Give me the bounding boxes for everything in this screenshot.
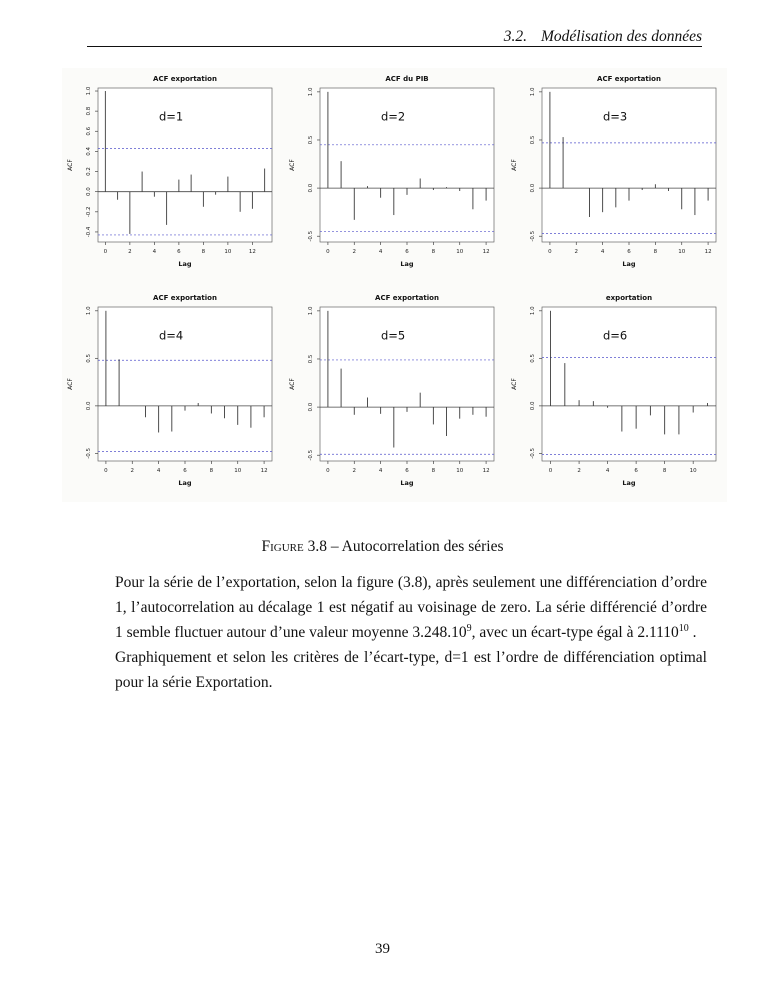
chart-title: ACF exportation: [153, 75, 217, 83]
y-tick-label: 0.5: [530, 353, 536, 362]
y-tick-label: 0.5: [530, 135, 536, 144]
d-order-annotation: d=5: [381, 328, 405, 342]
y-tick-label: 0.0: [86, 187, 92, 196]
y-axis-label: ACF: [289, 159, 296, 171]
d-order-annotation: d=1: [159, 109, 183, 123]
x-tick-label: 10: [456, 249, 463, 255]
x-tick-label: 6: [405, 249, 409, 255]
y-tick-label: -0.5: [308, 230, 314, 241]
y-tick-label: 1.0: [530, 306, 536, 315]
x-tick-label: 4: [379, 468, 383, 474]
y-tick-label: 0.0: [530, 183, 536, 192]
x-tick-label: 8: [663, 468, 667, 474]
paragraph-1: Pour la série de l’exportation, selon la…: [115, 570, 707, 645]
y-tick-label: 0.4: [86, 147, 92, 156]
y-tick-label: -0.5: [530, 448, 536, 459]
acf-plot-d3: ACF exportation1.00.50.0-0.5024681012Lag…: [509, 72, 724, 277]
y-tick-label: 1.0: [86, 306, 92, 315]
x-tick-label: 8: [653, 249, 657, 255]
x-tick-label: 12: [483, 249, 490, 255]
header-rule: [87, 46, 702, 47]
y-tick-label: -0.5: [308, 449, 314, 460]
figure-3-8: ACF exportation1.00.80.60.40.20.0-0.2-0.…: [62, 68, 727, 502]
x-tick-label: 12: [261, 468, 268, 474]
y-tick-label: 0.5: [308, 135, 314, 144]
x-tick-label: 4: [153, 249, 157, 255]
y-axis-label: ACF: [67, 378, 74, 390]
x-tick-label: 4: [606, 468, 610, 474]
acf-chart-svg: ACF exportation1.00.80.60.40.20.0-0.2-0.…: [65, 72, 280, 277]
page-number: 39: [375, 941, 390, 957]
x-tick-label: 8: [202, 249, 206, 255]
p1-text-b: , avec un écart-type égal à 2.1110: [472, 624, 679, 641]
y-tick-label: 0.0: [308, 183, 314, 192]
acf-plot-d5: ACF exportation1.00.50.0-0.5024681012Lag…: [287, 291, 502, 496]
d-order-annotation: d=3: [603, 109, 627, 123]
x-tick-label: 0: [548, 249, 552, 255]
d-order-annotation: d=2: [381, 109, 405, 123]
x-tick-label: 12: [483, 468, 490, 474]
x-tick-label: 8: [210, 468, 214, 474]
x-tick-label: 4: [601, 249, 605, 255]
x-axis-label: Lag: [400, 260, 414, 268]
x-axis-label: Lag: [622, 260, 636, 268]
y-tick-label: 1.0: [530, 87, 536, 96]
x-tick-label: 6: [177, 249, 181, 255]
body-text: Pour la série de l’exportation, selon la…: [115, 570, 707, 695]
x-axis-label: Lag: [179, 260, 193, 268]
y-tick-label: 0.5: [86, 353, 92, 362]
x-tick-label: 2: [128, 249, 132, 255]
paragraph-2: Graphiquement et selon les critères de l…: [115, 645, 707, 695]
acf-plot-d6: exportation1.00.50.0-0.50246810LagACFd=6: [509, 291, 724, 496]
y-axis-label: ACF: [511, 159, 518, 171]
figure-caption: Figure 3.8 – Autocorrelation des séries: [0, 538, 765, 556]
x-tick-label: 2: [353, 468, 357, 474]
x-tick-label: 2: [131, 468, 135, 474]
section-title: Modélisation des données: [541, 28, 702, 45]
y-tick-label: 1.0: [86, 86, 92, 95]
x-tick-label: 10: [235, 468, 242, 474]
x-axis-label: Lag: [179, 479, 193, 487]
x-tick-label: 12: [704, 249, 711, 255]
y-axis-label: ACF: [511, 378, 518, 390]
y-tick-label: -0.4: [86, 226, 92, 237]
x-tick-label: 10: [678, 249, 685, 255]
acf-plot-d1: ACF exportation1.00.80.60.40.20.0-0.2-0.…: [65, 72, 280, 277]
y-tick-label: 0.0: [530, 401, 536, 410]
y-tick-label: 1.0: [308, 306, 314, 315]
x-tick-label: 0: [104, 249, 108, 255]
x-tick-label: 10: [456, 468, 463, 474]
acf-plot-d2: ACF du PIB1.00.50.0-0.5024681012LagACFd=…: [287, 72, 502, 277]
d-order-annotation: d=4: [159, 328, 183, 342]
chart-title: ACF du PIB: [385, 75, 428, 83]
chart-title: ACF exportation: [597, 75, 661, 83]
x-tick-label: 2: [574, 249, 578, 255]
x-tick-label: 6: [627, 249, 631, 255]
chart-title: ACF exportation: [153, 294, 217, 302]
p1-superscript-10: 10: [679, 623, 689, 634]
x-axis-label: Lag: [400, 479, 414, 487]
x-tick-label: 8: [432, 468, 436, 474]
x-tick-label: 0: [104, 468, 108, 474]
document-page: 3.2.Modélisation des données ACF exporta…: [0, 0, 765, 990]
figure-caption-text: 3.8 – Autocorrelation des séries: [304, 538, 504, 555]
x-tick-label: 6: [184, 468, 188, 474]
x-tick-label: 2: [353, 249, 357, 255]
d-order-annotation: d=6: [603, 328, 627, 342]
y-tick-label: -0.2: [86, 206, 92, 217]
y-tick-label: 0.0: [86, 401, 92, 410]
running-header: 3.2.Modélisation des données: [504, 28, 702, 46]
y-axis-label: ACF: [289, 378, 296, 390]
acf-plot-d4: ACF exportation1.00.50.0-0.5024681012Lag…: [65, 291, 280, 496]
y-tick-label: 0.6: [86, 126, 92, 135]
chart-title: ACF exportation: [375, 294, 439, 302]
x-tick-label: 0: [326, 468, 330, 474]
acf-charts-grid: ACF exportation1.00.80.60.40.20.0-0.2-0.…: [62, 72, 727, 496]
y-tick-label: 0.5: [308, 354, 314, 363]
y-tick-label: 1.0: [308, 87, 314, 96]
x-tick-label: 6: [634, 468, 638, 474]
x-tick-label: 0: [548, 468, 552, 474]
x-tick-label: 2: [577, 468, 581, 474]
y-tick-label: 0.0: [308, 402, 314, 411]
y-tick-label: -0.5: [530, 230, 536, 241]
acf-chart-svg: ACF du PIB1.00.50.0-0.5024681012LagACFd=…: [287, 72, 502, 277]
y-tick-label: 0.8: [86, 106, 92, 115]
p1-text-c: .: [689, 624, 697, 641]
figure-caption-label: Figure: [262, 538, 304, 555]
acf-chart-svg: exportation1.00.50.0-0.50246810LagACFd=6: [509, 291, 724, 496]
x-tick-label: 4: [157, 468, 161, 474]
page-footer: 39: [0, 941, 765, 958]
x-axis-label: Lag: [622, 479, 636, 487]
x-tick-label: 10: [225, 249, 232, 255]
x-tick-label: 0: [326, 249, 330, 255]
y-axis-label: ACF: [67, 159, 74, 171]
x-tick-label: 4: [379, 249, 383, 255]
y-tick-label: 0.2: [86, 167, 92, 176]
section-number: 3.2.: [504, 28, 527, 45]
acf-chart-svg: ACF exportation1.00.50.0-0.5024681012Lag…: [65, 291, 280, 496]
x-tick-label: 6: [405, 468, 409, 474]
chart-title: exportation: [606, 294, 652, 302]
acf-chart-svg: ACF exportation1.00.50.0-0.5024681012Lag…: [287, 291, 502, 496]
x-tick-label: 10: [689, 468, 696, 474]
acf-chart-svg: ACF exportation1.00.50.0-0.5024681012Lag…: [509, 72, 724, 277]
x-tick-label: 12: [249, 249, 256, 255]
y-tick-label: -0.5: [86, 448, 92, 459]
x-tick-label: 8: [432, 249, 436, 255]
